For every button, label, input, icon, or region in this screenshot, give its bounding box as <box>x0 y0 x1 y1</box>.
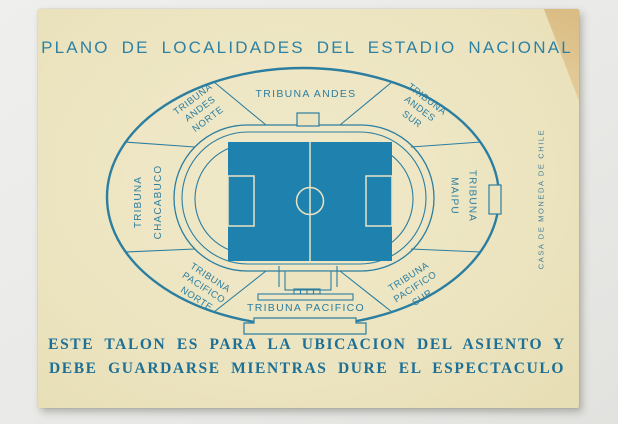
plan-title: PLANO DE LOCALIDADES DEL ESTADIO NACIONA… <box>41 38 573 58</box>
photo-backdrop: PLANO DE LOCALIDADES DEL ESTADIO NACIONA… <box>0 0 618 424</box>
section-label-maipu: TRIBUNA MAIPU <box>446 170 481 222</box>
south-gate <box>244 318 366 334</box>
printer-mark: CASA DE MONEDA DE CHILE <box>537 129 546 270</box>
section-label-andes: TRIBUNA ANDES <box>256 88 357 100</box>
east-gate <box>489 185 501 214</box>
scoreboard-notch <box>297 113 319 126</box>
ticket-notice: ESTE TALON ES PARA LA UBICACION DEL ASIE… <box>48 333 566 382</box>
ticket-notice-line2: DEBE GUARDARSE MIENTRAS DURE EL ESPECTAC… <box>48 357 566 381</box>
section-label-pacifico: TRIBUNA PACIFICO <box>247 302 365 314</box>
ticket-notice-line1: ESTE TALON ES PARA LA UBICACION DEL ASIE… <box>48 333 566 357</box>
section-label-chacabuco: TRIBUNA CHACABUCO <box>129 165 169 240</box>
football-field <box>228 142 392 261</box>
